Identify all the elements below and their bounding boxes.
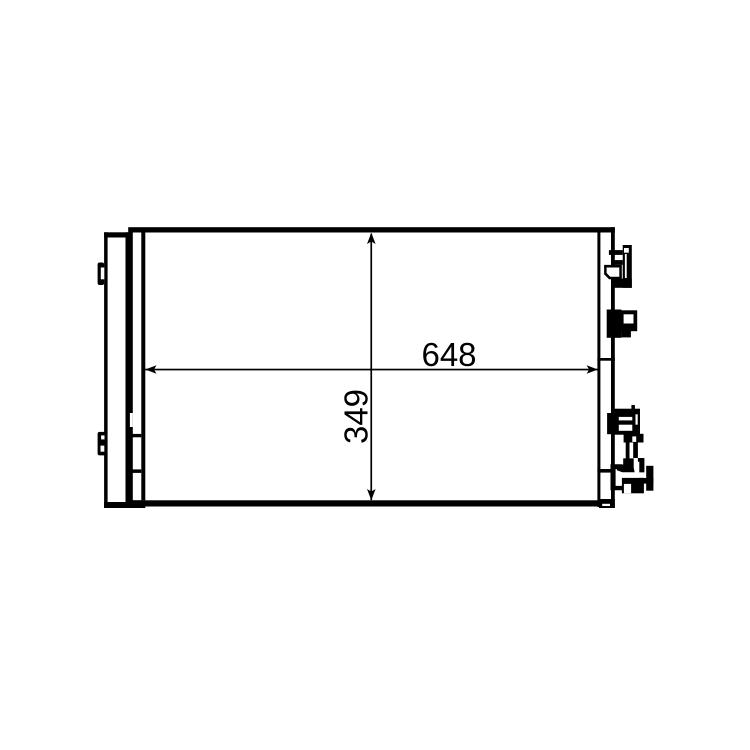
svg-text:648: 648: [421, 336, 476, 373]
svg-text:349: 349: [337, 389, 374, 444]
